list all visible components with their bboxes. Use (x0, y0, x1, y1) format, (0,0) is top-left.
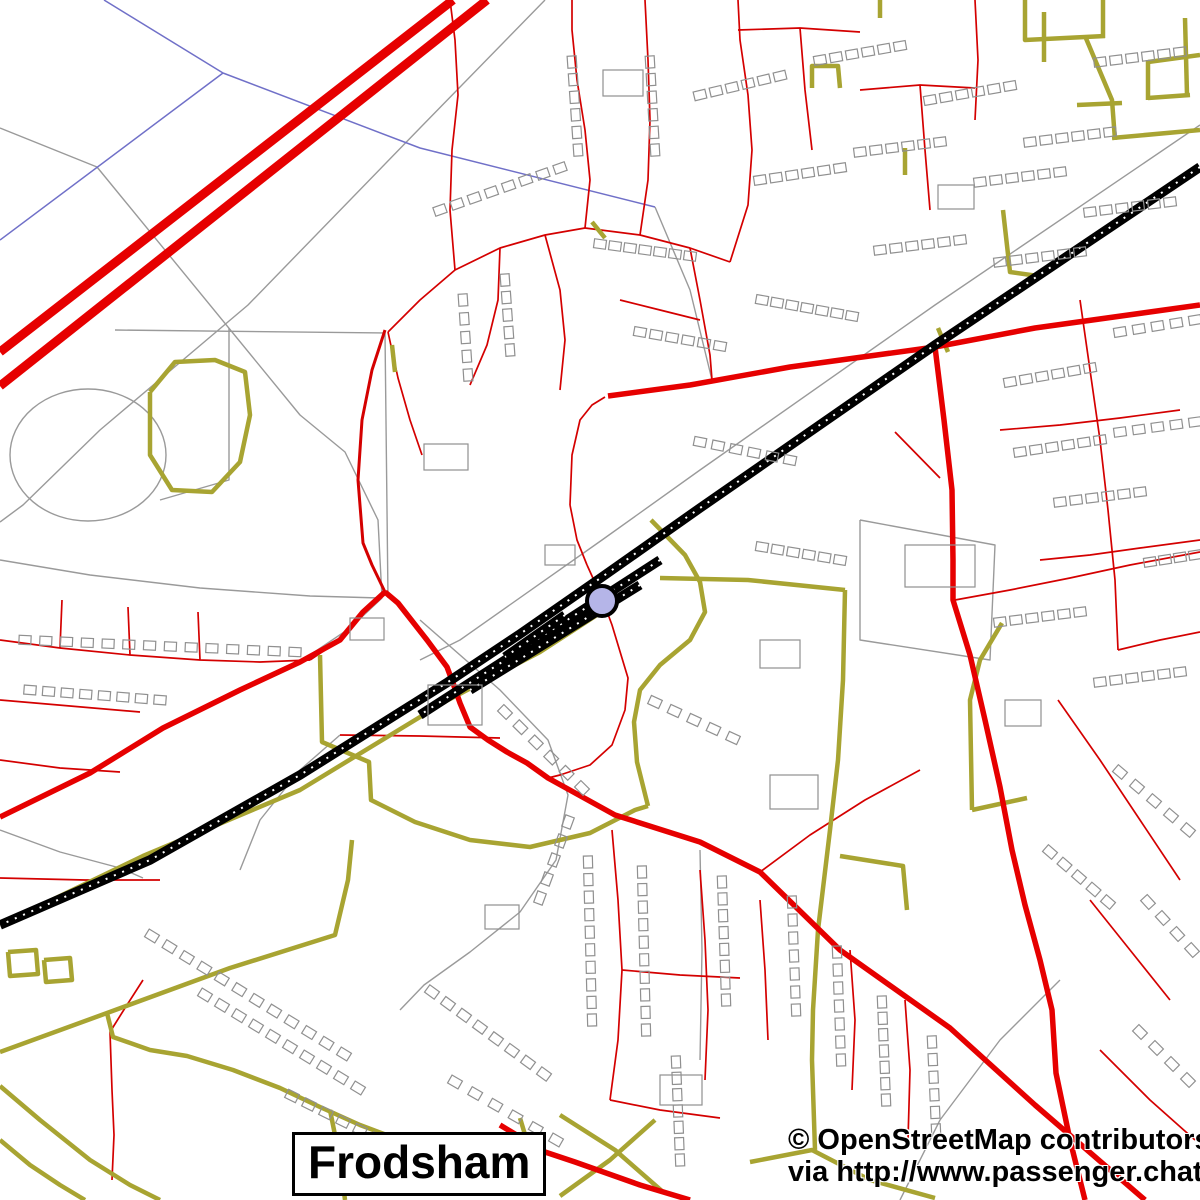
station-marker[interactable] (587, 586, 617, 616)
attribution-line-2: via http://www.passenger.chat (788, 1156, 1200, 1188)
place-label-box: Frodsham (292, 1132, 546, 1196)
place-label-text: Frodsham (308, 1136, 530, 1188)
map-canvas (0, 0, 1200, 1200)
map-attribution: © OpenStreetMap contributors via http://… (788, 1124, 1200, 1188)
map-viewport: Frodsham © OpenStreetMap contributors vi… (0, 0, 1200, 1200)
attribution-line-1: © OpenStreetMap contributors (788, 1124, 1200, 1156)
